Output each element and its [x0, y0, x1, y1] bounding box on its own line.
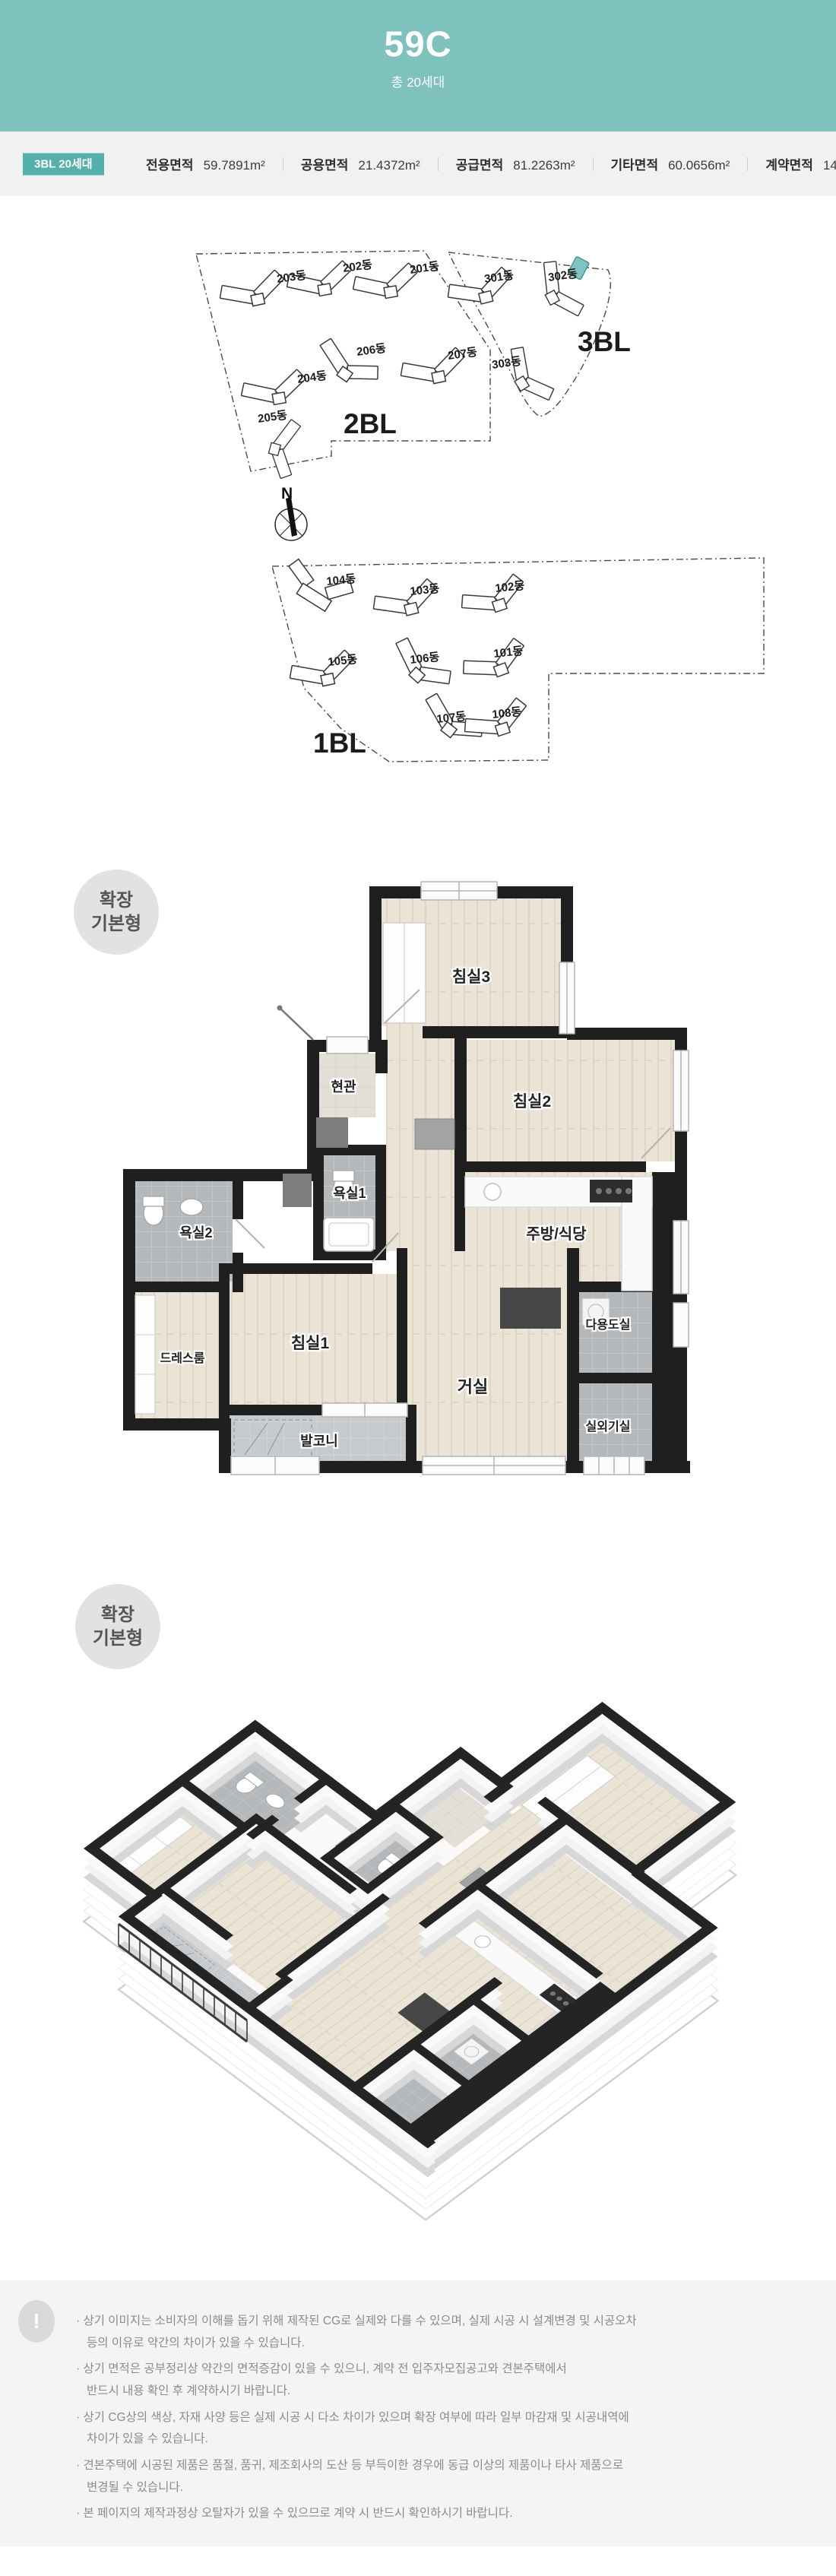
area-item: 계약면적 141.2919m² [765, 154, 836, 173]
room-label: 발코니 [300, 1434, 338, 1449]
building-label: 204동 [296, 369, 328, 386]
divider [438, 157, 439, 171]
area-label: 기타면적 [611, 154, 659, 173]
area-item: 기타면적 60.0656m² [611, 154, 730, 173]
disclaimer-item: · 본 페이지의 제작과정상 오탈자가 있을 수 있으므로 계약 시 반드시 확… [76, 2503, 775, 2525]
building-label: 103동 [410, 582, 441, 598]
area-item: 공급면적 81.2263m² [456, 154, 575, 173]
room-label: 욕실2 [179, 1225, 212, 1240]
area-info-bar: 3BL 20세대 전용면적 59.7891m² 공용면적 21.4372m² 공… [0, 131, 836, 196]
area-value: 21.4372m² [358, 158, 420, 173]
room-label: 침실3 [452, 968, 490, 986]
room-label: 욕실1 [333, 1186, 366, 1201]
building-label: 106동 [410, 651, 441, 667]
building-label: 202동 [342, 258, 373, 275]
floor-plan-3d-isometric [0, 1505, 836, 2280]
room-label: 주방/식당 [526, 1225, 587, 1243]
block-boundaries [196, 251, 764, 762]
block-label-2bl: 2BL [344, 408, 397, 439]
disclaimer-item: · 견본주택에 시공된 제품은 품절, 품귀, 제조회사의 도산 등 부득이한 … [76, 2455, 775, 2498]
disclaimer-list: · 상기 이미지는 소비자의 이해를 돕기 위해 제작된 CG로 실제와 다를 … [0, 2280, 836, 2525]
unit-header: 59C 총 20세대 [0, 0, 836, 131]
room-label: 거실 [458, 1377, 488, 1396]
exclamation-icon: ! [18, 2300, 55, 2343]
room-label: 침실2 [513, 1093, 551, 1111]
area-label: 공급면적 [456, 154, 504, 173]
site-plan-diagram: 203동 202동 201동 204동 206동 207동 205동 2BL 3… [0, 196, 836, 774]
room-label: 침실1 [291, 1335, 330, 1352]
area-value: 141.2919m² [823, 158, 836, 173]
area-label: 계약면적 [765, 154, 813, 173]
building-label: 108동 [492, 705, 523, 721]
area-label: 전용면적 [146, 154, 194, 173]
building-label: 105동 [328, 653, 359, 669]
room-label: 드레스룸 [160, 1351, 205, 1365]
entry-arrow [277, 1006, 314, 1041]
area-item: 공용면적 21.4372m² [301, 154, 420, 173]
unit-code: 59C [0, 0, 836, 62]
divider [747, 157, 748, 171]
area-item: 전용면적 59.7891m² [146, 154, 265, 173]
block-1bl: 104동 103동 102동 105동 106동 101동 107동 108동 … [280, 557, 533, 759]
block-label-3bl: 3BL [578, 326, 631, 357]
block-3bl: 301동 302동 303동 3BL [444, 255, 631, 410]
area-label: 공용면적 [301, 154, 349, 173]
room-label: 현관 [331, 1079, 356, 1095]
page: 59C 총 20세대 3BL 20세대 전용면적 59.7891m² 공용면적 … [0, 0, 836, 2576]
disclaimer-section: ! · 상기 이미지는 소비자의 이해를 돕기 위해 제작된 CG로 실제와 다… [0, 2280, 836, 2546]
block-badge: 3BL 20세대 [23, 153, 104, 175]
building-label: 206동 [356, 342, 387, 359]
area-value: 60.0656m² [668, 158, 730, 173]
building-label: 301동 [483, 269, 515, 286]
divider [593, 157, 594, 171]
building-label: 205동 [257, 409, 288, 426]
total-units: 총 20세대 [0, 71, 836, 90]
block-2bl: 203동 202동 201동 204동 206동 207동 205동 2BL [217, 258, 478, 481]
building-label: 207동 [447, 346, 478, 363]
area-value: 59.7891m² [204, 158, 265, 173]
room-label: 다용도실 [586, 1318, 631, 1332]
disclaimer-item: · 상기 면적은 공부정리상 약간의 면적증감이 있을 수 있으니, 계약 전 … [76, 2359, 775, 2402]
building-label: 201동 [409, 260, 440, 277]
room-label: 실외기실 [586, 1420, 631, 1434]
compass-icon: N [275, 485, 307, 540]
area-value: 81.2263m² [513, 158, 575, 173]
area-items: 전용면적 59.7891m² 공용면적 21.4372m² 공급면적 81.22… [146, 131, 836, 196]
divider [283, 157, 283, 171]
building-label: 104동 [326, 572, 357, 588]
disclaimer-item: · 상기 이미지는 소비자의 이해를 돕기 위해 제작된 CG로 실제와 다를 … [76, 2311, 775, 2354]
building-label: 102동 [495, 579, 526, 595]
building-label: 101동 [493, 645, 524, 661]
floor-plan-2d: 침실3 현관 침실2 욕실1 욕실2 주방/식당 다용도실 드레스룸 침실1 거… [0, 775, 836, 1505]
block-label-1bl: 1BL [313, 727, 366, 759]
disclaimer-item: · 상기 CG상의 색상, 자재 사양 등은 실제 시공 시 다소 차이가 있으… [76, 2407, 775, 2451]
